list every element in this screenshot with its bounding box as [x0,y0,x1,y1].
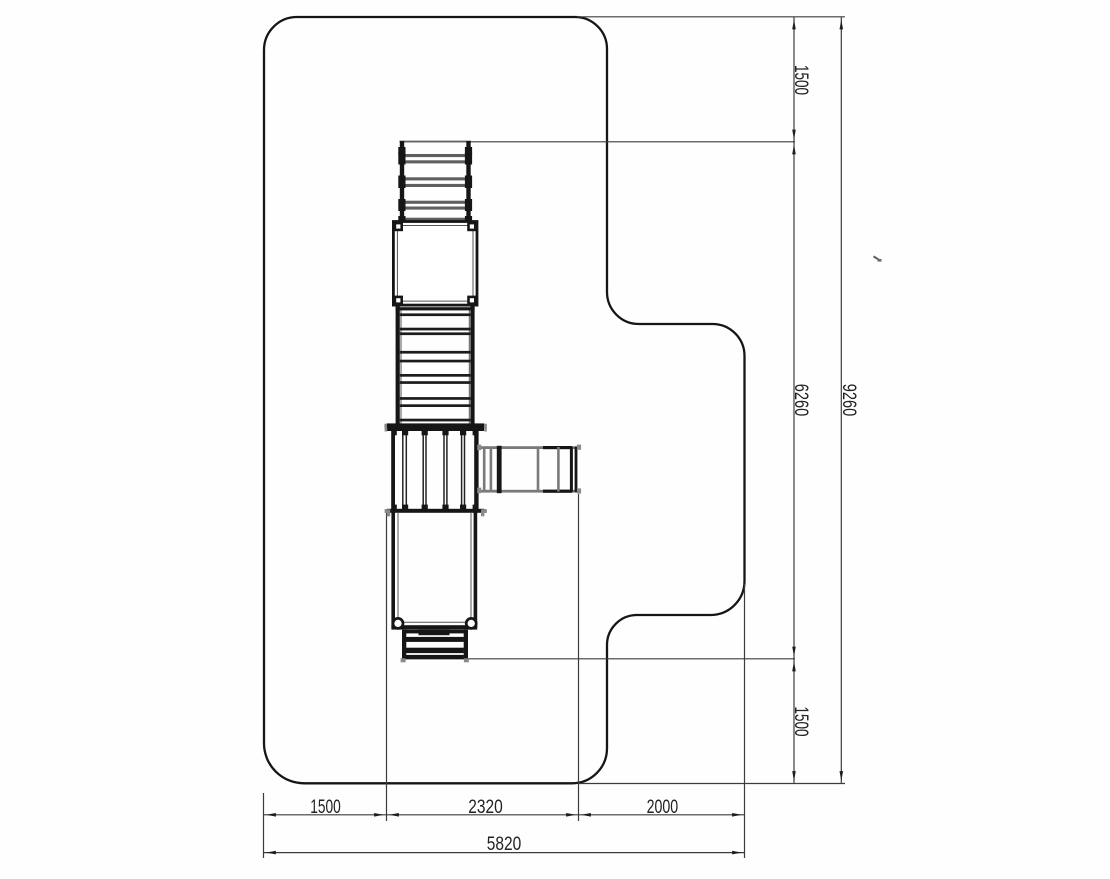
svg-text:2320: 2320 [468,797,503,818]
svg-text:6260: 6260 [790,384,811,417]
svg-text:2000: 2000 [647,797,679,818]
svg-text:9260: 9260 [838,384,859,417]
svg-text:1500: 1500 [790,65,811,95]
svg-text:1500: 1500 [310,797,341,818]
svg-text:5820: 5820 [487,834,522,855]
svg-text:1500: 1500 [790,707,811,737]
